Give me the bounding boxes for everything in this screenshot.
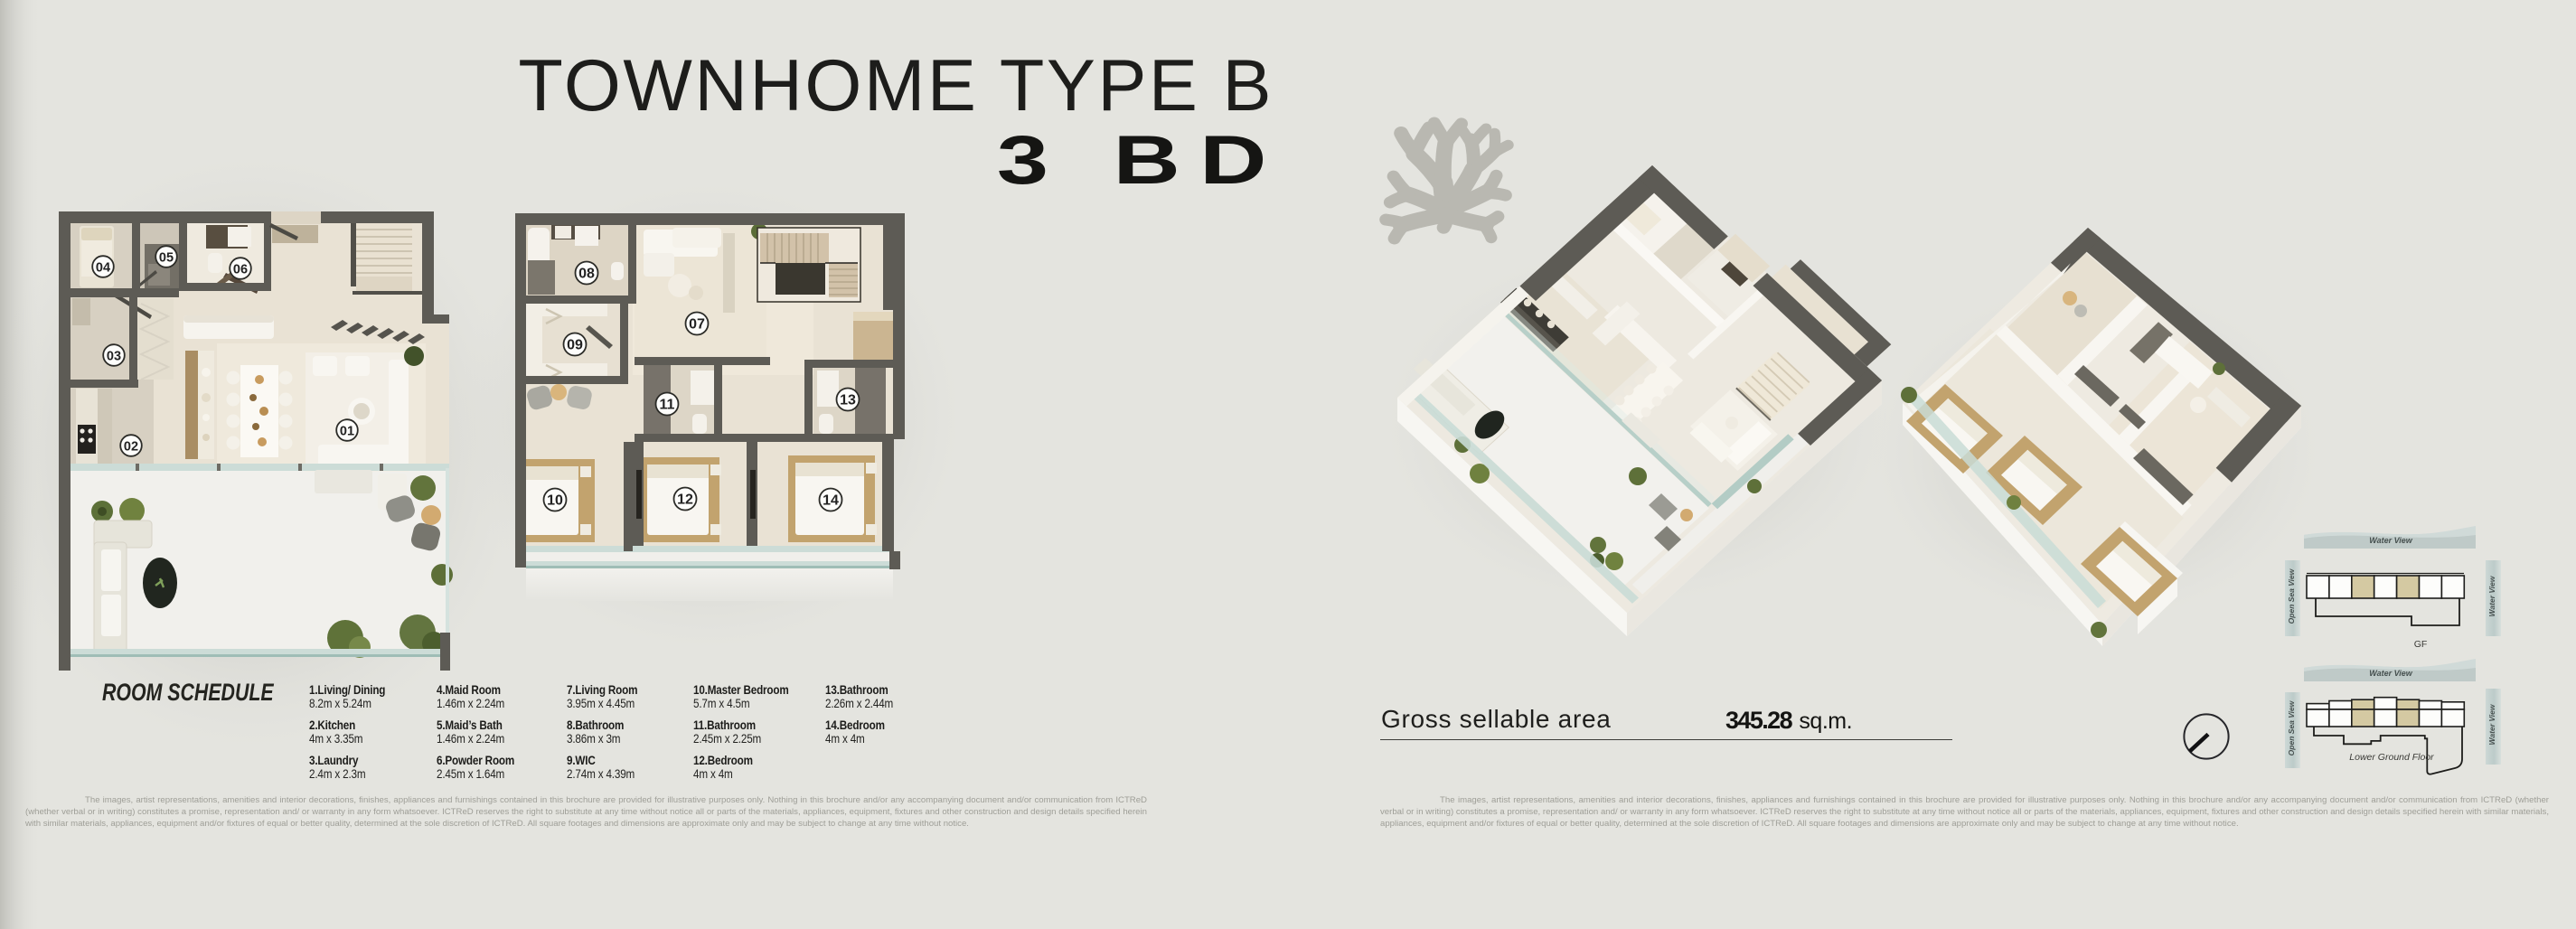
svg-text:08: 08 <box>578 267 595 282</box>
svg-text:01: 01 <box>340 425 354 439</box>
svg-text:GF: GF <box>2414 639 2428 650</box>
svg-text:09: 09 <box>567 338 583 353</box>
svg-text:04: 04 <box>96 261 110 276</box>
svg-text:Open Sea View: Open Sea View <box>2287 568 2296 624</box>
svg-text:02: 02 <box>124 440 138 455</box>
svg-text:Water View: Water View <box>2369 536 2413 545</box>
svg-text:12: 12 <box>677 493 693 508</box>
svg-text:14: 14 <box>823 493 839 509</box>
svg-text:11: 11 <box>660 398 675 413</box>
svg-text:13: 13 <box>840 393 856 408</box>
svg-text:Water View: Water View <box>2369 669 2413 678</box>
svg-text:Lower Ground Floor: Lower Ground Floor <box>2349 752 2434 763</box>
svg-text:06: 06 <box>233 263 248 277</box>
svg-text:Water View: Water View <box>2487 575 2496 616</box>
svg-text:07: 07 <box>689 317 705 333</box>
svg-text:Water View: Water View <box>2487 703 2496 745</box>
svg-text:10: 10 <box>547 493 563 509</box>
svg-text:03: 03 <box>107 350 121 364</box>
svg-text:Open Sea View: Open Sea View <box>2287 699 2296 755</box>
svg-text:05: 05 <box>159 251 174 266</box>
